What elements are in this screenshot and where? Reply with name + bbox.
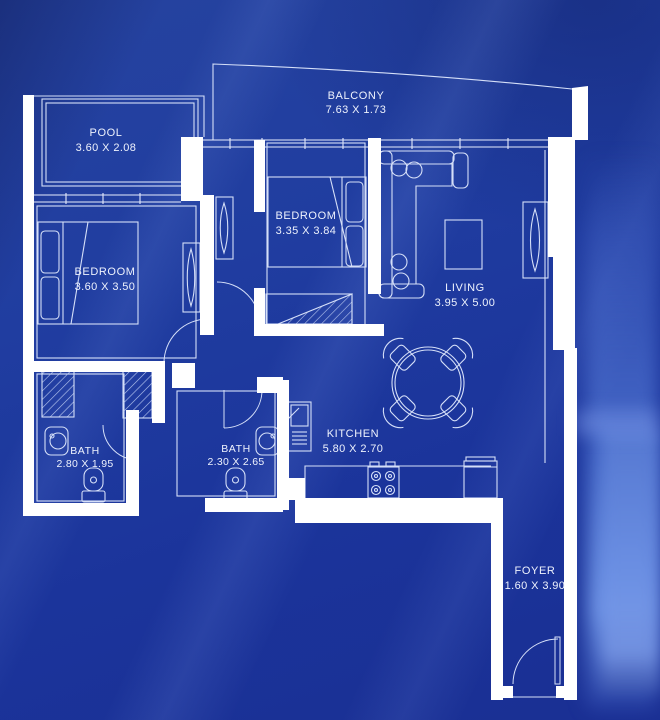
room-label-bedroom-top: BEDROOM xyxy=(275,210,336,222)
hatch-areas xyxy=(42,294,352,418)
window-band-pool xyxy=(33,193,181,204)
wall-living-right xyxy=(548,137,575,257)
chair-icon xyxy=(436,391,478,433)
kitchen-counter xyxy=(305,462,491,498)
wall-bath-left-right xyxy=(126,410,139,516)
wall-bedroom-living-divider xyxy=(368,138,381,294)
wall-bath-middle-topleft xyxy=(172,363,195,388)
chair-icon xyxy=(436,333,478,375)
wall-bedrooms-divider xyxy=(200,195,214,335)
room-label-kitchen: KITCHEN xyxy=(327,428,379,440)
room-dims-balcony: 7.63 X 1.73 xyxy=(326,104,387,116)
wall-bedroom-top-bottom xyxy=(254,324,384,336)
room-label-bedroom-left: BEDROOM xyxy=(74,266,135,278)
room-dims-bedroom-top: 3.35 X 3.84 xyxy=(276,225,337,237)
room-dims-living: 3.95 X 5.00 xyxy=(435,297,496,309)
walls xyxy=(23,86,588,700)
room-label-living: LIVING xyxy=(445,282,485,294)
wall-foyer-left xyxy=(491,498,503,700)
sofa-icon xyxy=(379,151,468,298)
entrance-jamb-left xyxy=(503,686,513,698)
dining-chairs xyxy=(378,333,477,432)
fridge-icon xyxy=(464,457,497,498)
room-dims-bath-middle: 2.30 X 2.65 xyxy=(207,456,264,468)
wall-bedroom-left-bottom xyxy=(33,361,156,372)
wall-bath-left-bottom xyxy=(23,503,135,516)
room-dims-bath-left: 2.80 X 1.95 xyxy=(56,458,113,470)
room-dims-pool: 3.60 X 2.08 xyxy=(76,142,137,154)
wall-vestibule xyxy=(152,361,165,423)
room-label-bath-left: BATH xyxy=(70,445,100,457)
wall-balcony-right xyxy=(572,86,588,140)
dining-table-icon xyxy=(392,347,464,419)
room-label-pool: POOL xyxy=(90,127,123,139)
wall-left-outer xyxy=(23,95,34,507)
wall-right-middle xyxy=(553,253,575,350)
door-arc-bath-middle xyxy=(224,390,262,428)
floor-plan: BALCONY 7.63 X 1.73 POOL 3.60 X 2.08 BED… xyxy=(0,0,660,720)
sink-bath-left-icon xyxy=(45,427,68,455)
shower-hatch-bath-left xyxy=(42,369,74,417)
window-band-living xyxy=(381,138,548,149)
bed-top-icon xyxy=(268,177,366,267)
wall-kitchen-step xyxy=(283,478,305,500)
wall-bedroom-top-left-upper xyxy=(254,140,265,212)
room-label-balcony: BALCONY xyxy=(328,90,385,102)
chair-icon xyxy=(378,333,420,375)
room-dims-bedroom-left: 3.60 X 3.50 xyxy=(75,281,136,293)
chair-icon xyxy=(378,391,420,433)
floor-plan-canvas: BALCONY 7.63 X 1.73 POOL 3.60 X 2.08 BED… xyxy=(0,0,660,720)
entrance-door-arc xyxy=(513,639,558,684)
wardrobe-bedroom-left-icon xyxy=(183,243,200,312)
wardrobe-hall-icon xyxy=(216,197,233,259)
room-dims-kitchen: 5.80 X 2.70 xyxy=(323,443,384,455)
wall-pool-right xyxy=(181,137,203,201)
wall-foyer-right xyxy=(564,348,577,700)
room-label-bath-middle: BATH xyxy=(221,443,251,455)
coffee-table-icon xyxy=(445,220,482,269)
closet-hatch-bedroom-top xyxy=(278,294,352,324)
room-dims-foyer: 1.60 X 3.90 xyxy=(505,580,566,592)
wall-kitchen-bottom xyxy=(295,498,503,523)
window-unit-living-icon xyxy=(523,202,548,278)
door-arc-bedroom-top xyxy=(217,282,260,325)
toilet-bath-middle-icon xyxy=(224,468,247,502)
wall-bath-middle-bottom xyxy=(205,498,283,512)
balcony-parapet xyxy=(213,64,572,140)
room-label-foyer: FOYER xyxy=(515,565,556,577)
toilet-bath-left-icon xyxy=(82,468,105,502)
entrance-door-leaf xyxy=(555,637,560,684)
